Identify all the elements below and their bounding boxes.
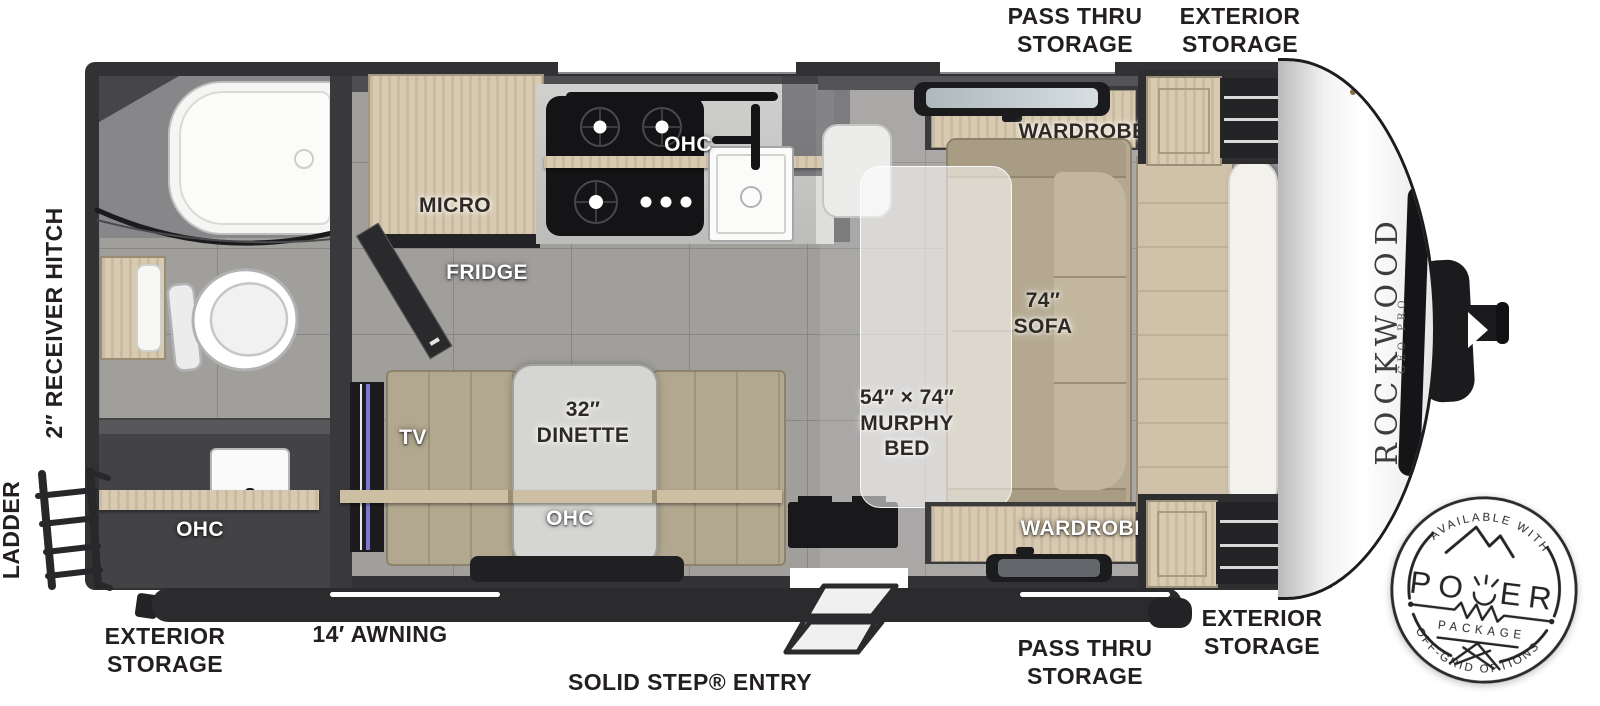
label-exterior-top: EXTERIOR STORAGE — [1130, 2, 1350, 58]
door-handle — [429, 337, 440, 346]
fridge-label: FRIDGE — [417, 260, 557, 286]
bedroom-window-glass — [926, 88, 1098, 108]
dinette-label: 32″ DINETTE — [513, 397, 653, 448]
label-entry: SOLID STEP® ENTRY — [560, 668, 820, 696]
label-ladder: LADDER — [0, 475, 23, 585]
nose-rivet — [1350, 89, 1356, 95]
kitchen-ohc-label: OHC — [638, 132, 738, 158]
entry-step-inside — [788, 502, 898, 548]
bath-counter — [99, 490, 319, 510]
solid-step-graphic — [762, 580, 932, 672]
front-cabinet-top — [1146, 76, 1222, 166]
dinette-ohc-shelf — [340, 490, 782, 503]
label-awning: 14′ AWNING — [270, 620, 490, 648]
tv-label: TV — [383, 425, 443, 451]
dinette-bench-left — [386, 370, 518, 566]
bath-ohc-label: OHC — [150, 517, 250, 543]
bath-shelf — [99, 420, 330, 434]
tv-accent-line — [366, 384, 370, 550]
murphy-bed-label: 54″ × 74″ MURPHY BED — [817, 385, 997, 462]
entry-mat — [470, 556, 684, 582]
vanity-mirror — [136, 264, 162, 352]
bedroom-step-mat-inner — [998, 559, 1100, 577]
badge-power-left: PO — [1408, 564, 1473, 607]
dinette-table — [512, 364, 658, 566]
badge-power-right: ER — [1498, 575, 1561, 618]
awning-highlight-2 — [1020, 592, 1170, 597]
awning-highlight-1 — [330, 592, 500, 597]
tv-edge-line — [360, 384, 362, 550]
floorplan-page: OHC MICRO FRIDGE OHC 32″ DINETTE — [0, 0, 1600, 706]
awning-bar — [152, 588, 1182, 622]
label-exterior-bottom-left: EXTERIOR STORAGE — [65, 622, 265, 678]
dinette-bench-right — [652, 370, 786, 566]
top-wall-window-bedroom — [940, 62, 1115, 74]
micro-label: MICRO — [395, 193, 515, 219]
tub-drain — [294, 149, 314, 169]
rear-ladder — [24, 468, 114, 594]
cabinet-panel-inset — [1157, 511, 1207, 577]
top-wall-window-kitchen — [558, 62, 796, 74]
shelf-gap-1 — [508, 490, 513, 503]
sink-drain — [740, 186, 762, 208]
toilet — [165, 256, 310, 386]
label-exterior-bottom-right: EXTERIOR STORAGE — [1152, 604, 1372, 660]
entry-step-nub-1 — [798, 496, 832, 504]
step-mat-knob — [1016, 547, 1034, 555]
power-package-badge: AVAILABLE WITH PO ER PACKAGE OFF-GRID OP… — [1377, 483, 1591, 697]
shower-door-arc — [90, 198, 352, 262]
shelf-gap-2 — [652, 490, 657, 503]
murphy-bed-folded-panel — [1136, 156, 1234, 512]
mattress-edge — [1228, 160, 1278, 510]
cabinet-panel-inset — [1158, 88, 1210, 154]
brand-sub: GEO PRO — [1397, 275, 1411, 395]
label-receiver-hitch: 2″ RECEIVER HITCH — [40, 158, 68, 488]
front-cabinet-bottom — [1146, 500, 1218, 588]
microwave-cabinet-base — [368, 234, 540, 248]
bath-partition-wall — [330, 76, 352, 588]
towel-bar — [566, 92, 778, 101]
dinette-ohc-label: OHC — [520, 506, 620, 532]
sofa-label: 74″ SOFA — [983, 288, 1103, 339]
